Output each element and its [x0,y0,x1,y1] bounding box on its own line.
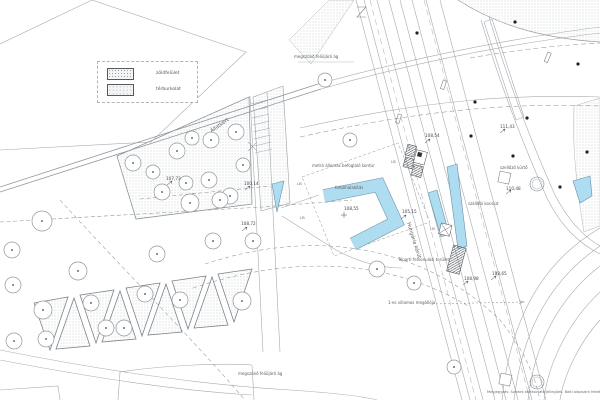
site-plan-drawing [0,0,600,400]
label-removed-overpass-bottom: megszűnő felüljáró ág [238,372,282,376]
roads-and-boundaries [0,0,600,400]
elevation-label: 108,72 [241,222,256,226]
triangle-planting-band [34,269,252,350]
legend-row-paving: térburkolat [107,84,181,96]
label-staging-area: Tóparti felvonulási terület [398,258,449,262]
drawing-note: Megjegyzés: Szintek tájékoztató jellegűe… [487,391,600,395]
label-removed-overpass-top: megszűnő felüljáró ág [294,55,338,59]
lb-marker: LB [391,160,396,164]
lb-marker: LB [297,182,302,186]
legend-row-green: zöldfelület [107,68,179,80]
elevation-label: 108,54 [425,134,440,138]
elevation-label: 111,43 [500,125,515,129]
label-tram-stop: 1-es villamos megállója [388,301,435,305]
elevation-label: 105,15 [402,210,417,214]
site-plan: zöldfelület térburkolat megszűnő felüljá… [0,0,600,400]
point-markers [415,20,588,188]
label-vent-shaft: szellőző kürtő [500,166,528,170]
label-metro-station-contour: metró állomás befoglaló kontúr [312,164,375,168]
lb-marker: LB [430,227,435,231]
legend-label-green: zöldfelület [156,72,179,77]
elevation-label: 108,65 [492,272,507,276]
elevation-label: 108,98 [464,277,479,281]
lb-marker: LB [300,216,305,220]
highlighted-plaza-shapes [272,164,592,249]
legend-label-paving: térburkolat [156,88,181,93]
label-service-road: szállítói kocsiút [468,202,499,206]
elevation-label: 110,48 [506,187,521,191]
elevation-label: 100,14 [244,182,259,186]
elevation-label: 107,73 [166,177,181,181]
legend-swatch-green [107,68,134,80]
legend: zöldfelület térburkolat [97,61,198,103]
legend-swatch-paving [107,84,134,96]
label-surface-works: felszínalakítás [335,186,363,190]
dashed-lines [0,0,600,400]
elevation-label: 108,55 [344,207,359,211]
